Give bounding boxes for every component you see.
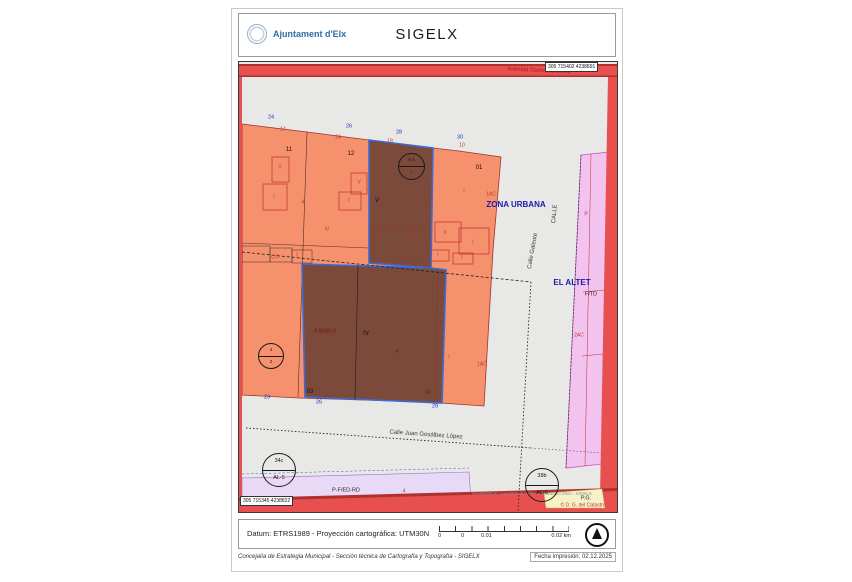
- scale-ticks: [439, 526, 569, 532]
- map-label: 02: [425, 391, 431, 396]
- print-date: Fecha impresión: 02.12.2025: [530, 552, 616, 562]
- footer: Concejalía de Estrategia Municipal - Sec…: [238, 552, 616, 562]
- map-label: © D. G. del Catastro: [560, 504, 605, 509]
- map-label: ZONA URBANA: [486, 201, 545, 209]
- cadastral-symbol: 5 aI: [398, 153, 425, 180]
- map-label: P.G.: [581, 496, 591, 502]
- map-label: 12: [348, 151, 355, 157]
- cadastral-symbol: 38bAL-6: [525, 468, 559, 502]
- scale-label: 0: [461, 533, 464, 539]
- map-label: CO: [271, 256, 279, 261]
- map-label: I: [463, 190, 464, 195]
- coordinate-readout-top: 305 715402 4238891: [545, 62, 598, 72]
- map-label: I: [296, 254, 297, 259]
- map-viewport[interactable]: Avenida Dama de Elche2426283014241810111…: [238, 61, 618, 513]
- map-label: I: [461, 256, 462, 261]
- map-label: 2AC: [574, 334, 584, 339]
- map-label: a: [444, 231, 447, 236]
- map-label: 29: [432, 404, 438, 410]
- map-label: I: [273, 196, 274, 201]
- map-info-bar: Datum: ETRS1989 - Proyección cartográfic…: [238, 519, 616, 549]
- datum-label: Datum: ETRS1989 - Proyección cartográfic…: [247, 529, 429, 538]
- map-label: Calle Galeote: [527, 233, 539, 270]
- map-label: 10: [459, 144, 465, 149]
- map-label: Calle Juan Gosálbez López: [389, 429, 463, 440]
- app-title: SIGELX: [239, 26, 615, 43]
- map-label: a: [396, 350, 399, 355]
- map-label: I: [472, 241, 473, 246]
- scale-label: 0.01: [481, 533, 492, 539]
- map-label: 03: [307, 389, 314, 395]
- map-label: 18: [387, 140, 393, 145]
- map-label: a: [379, 232, 382, 237]
- map-label: V: [375, 198, 379, 204]
- map-label: CALLE: [551, 204, 559, 223]
- print-page: Ajuntament d'Elx SIGELX: [231, 8, 623, 572]
- department-label: Concejalía de Estrategia Municipal - Sec…: [238, 554, 480, 560]
- map-label: V: [278, 166, 281, 171]
- map-label: 11: [286, 147, 292, 153]
- cadastral-symbol: 34cAL-5: [262, 453, 296, 487]
- map-label: 1AC: [477, 363, 487, 368]
- map-label: 4: [403, 490, 406, 495]
- map-labels-layer: Avenida Dama de Elche2426283014241810111…: [239, 62, 617, 512]
- map-label: IV: [325, 228, 330, 233]
- map-label: 1AC: [486, 193, 496, 198]
- header-bar: Ajuntament d'Elx SIGELX: [238, 13, 616, 57]
- map-label: F/TD: [585, 292, 597, 298]
- scale-label: 0.02 km: [551, 533, 571, 539]
- map-label: P-F/ED-RD: [332, 488, 360, 494]
- map-label: 4: [302, 201, 305, 206]
- map-label: 01: [476, 165, 483, 171]
- map-label: 24: [335, 136, 341, 141]
- cadastral-symbol: 42: [258, 343, 284, 369]
- scale-label: 0: [438, 533, 441, 539]
- map-label: 14: [280, 128, 286, 133]
- map-label: 24: [268, 115, 274, 121]
- map-label: 30: [457, 135, 463, 141]
- map-label: 26: [316, 400, 322, 406]
- map-label: CO: [407, 236, 415, 241]
- north-arrow-icon: [585, 523, 609, 547]
- map-label: V: [357, 181, 360, 186]
- coordinate-readout-bottom: 305 715345 4238822: [240, 496, 293, 506]
- map-label: EL ALTET: [553, 279, 590, 287]
- map-label: I: [448, 356, 449, 361]
- map-label: I: [437, 253, 438, 258]
- map-label: 23: [264, 395, 270, 401]
- map-label: I: [348, 199, 349, 204]
- map-label: P: [584, 213, 587, 218]
- scale-bar: 0 0 0.01 0.02 km: [439, 526, 571, 542]
- map-label: IV: [363, 331, 369, 337]
- map-label: 26: [346, 124, 352, 130]
- map-label: 4-SUELO: [314, 330, 336, 335]
- map-label: 28: [396, 130, 402, 136]
